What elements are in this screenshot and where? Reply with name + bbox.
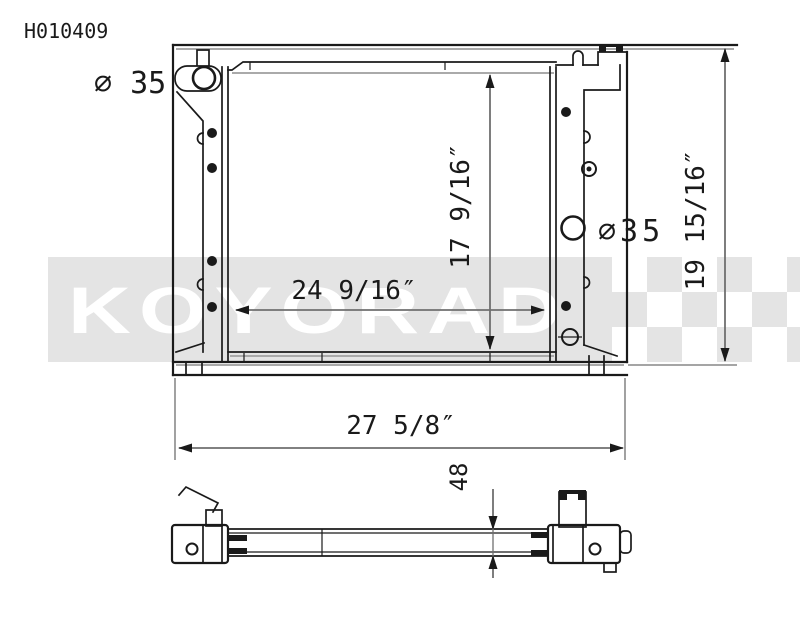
right-tank-block (548, 525, 620, 563)
radiator-bottom-plate (173, 362, 627, 375)
rivet-hole (207, 256, 217, 266)
core-height-label: 17 9/16″ (446, 143, 476, 268)
left-tank-block (172, 525, 228, 563)
right-tank-bumps (584, 131, 590, 288)
left-tab (228, 535, 247, 541)
right-bracket-cap (559, 490, 586, 500)
left-tank-profile (177, 92, 203, 352)
rivet-hole (207, 302, 217, 312)
right-tank (550, 44, 627, 375)
core-top-edge (228, 62, 556, 70)
part-number-label: H010409 (24, 19, 108, 43)
left-block-seams (203, 525, 222, 563)
core-top-clips (250, 62, 445, 70)
right-block-foot (604, 563, 616, 572)
radiator-technical-drawing: KOYORAD (0, 0, 800, 619)
left-port-diameter-label: ⌀ 35 (94, 66, 166, 101)
right-block-hole (590, 544, 601, 555)
core-section-inner (228, 529, 548, 556)
rivet-hole (561, 107, 571, 117)
left-bracket (179, 487, 218, 512)
right-tank-profile (584, 65, 620, 345)
top-stub (573, 51, 583, 65)
left-bracket-tab (206, 510, 222, 526)
right-port-diameter-label: ⌀35 (598, 214, 664, 249)
top-bracket (598, 52, 627, 65)
rivet-hole (561, 301, 571, 311)
bottom-view (172, 487, 631, 578)
core-thickness-label: 48 (445, 463, 473, 492)
rivet-hole (207, 163, 217, 173)
drawing-canvas: H010409 ⌀ 35 ⌀35 24 9/16″ 17 9/16″ 19 15… (0, 0, 800, 619)
rivet-hole (207, 128, 217, 138)
right-block-seams (553, 525, 583, 563)
right-header-flange (550, 67, 556, 362)
core (228, 62, 556, 363)
outlet-port-circle (562, 217, 585, 240)
filler-neck (197, 50, 209, 65)
left-block-hole (187, 544, 198, 555)
filler-port-circle (193, 67, 215, 89)
right-tab (531, 532, 549, 538)
left-header-flange (222, 67, 228, 362)
overall-height-label: 19 15/16″ (681, 150, 711, 291)
extension-lines (175, 365, 737, 460)
core-width-label: 24 9/16″ (291, 276, 416, 306)
left-tank (175, 50, 228, 375)
overall-width-label: 27 5/8″ (346, 411, 456, 441)
left-foot (176, 343, 204, 375)
side-pipe (620, 531, 631, 553)
left-tab (228, 548, 247, 554)
right-foot (584, 345, 617, 375)
small-ring-center (587, 167, 592, 172)
right-tab (531, 550, 549, 556)
